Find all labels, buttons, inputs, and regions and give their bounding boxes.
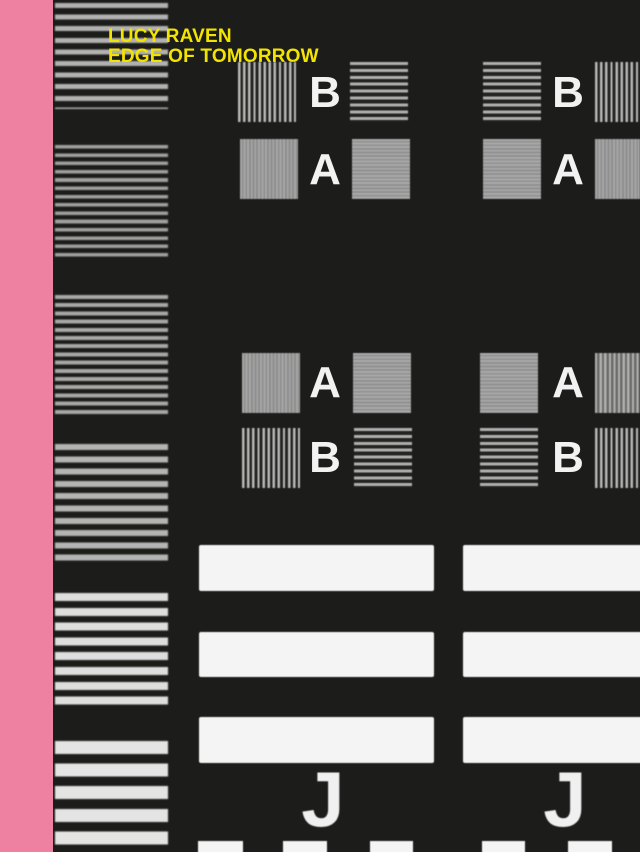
resolution-stripe-band-4 [55, 444, 168, 567]
test-square-vertical-coarse-cropped [595, 62, 640, 122]
test-square-horizontal-coarse [354, 428, 412, 488]
pattern-letter: B [546, 437, 590, 479]
bottom-partial-square [370, 841, 413, 852]
footer-letter-j-left: J [300, 760, 346, 838]
test-square-vertical-medium-cropped [595, 353, 640, 413]
test-square-vertical-coarse [242, 428, 300, 488]
test-square-vertical-fine [240, 139, 298, 199]
test-square-vertical-coarse-cropped [595, 428, 640, 488]
pattern-letter: B [303, 437, 347, 479]
pattern-letter: A [303, 149, 347, 191]
pattern-letter: A [546, 362, 590, 404]
white-bar [199, 545, 434, 591]
white-bar [463, 545, 640, 591]
pattern-letter: B [303, 72, 347, 114]
resolution-stripe-band-5 [55, 593, 168, 708]
test-square-horizontal-fine [483, 139, 541, 199]
test-square-vertical-fine [242, 353, 300, 413]
test-square-horizontal-fine [480, 353, 538, 413]
book-cover: LUCY RAVEN EDGE OF TOMORROW B A B A A B … [0, 0, 640, 852]
pattern-letter: A [546, 149, 590, 191]
pattern-letter: A [303, 362, 347, 404]
footer-letter-j-right: J [542, 760, 588, 838]
cover-title: LUCY RAVEN EDGE OF TOMORROW [108, 27, 319, 67]
title-artist-name: LUCY RAVEN [108, 27, 319, 47]
test-square-horizontal-fine [353, 353, 411, 413]
test-square-horizontal-coarse [483, 62, 541, 122]
bottom-partial-square [482, 841, 525, 852]
resolution-stripe-band-2 [55, 145, 168, 257]
test-square-vertical-fine-cropped [595, 139, 640, 199]
bottom-partial-square [283, 841, 327, 852]
test-square-vertical-coarse [238, 62, 296, 122]
pattern-letter: B [546, 72, 590, 114]
test-square-horizontal-coarse [480, 428, 538, 488]
white-bar [463, 632, 640, 677]
test-square-horizontal-coarse [350, 62, 408, 122]
resolution-stripe-band-3 [55, 295, 168, 414]
test-square-horizontal-fine [352, 139, 410, 199]
white-bar [199, 632, 434, 677]
bottom-partial-square [198, 841, 243, 852]
pink-spine-stripe [0, 0, 53, 852]
bottom-partial-square [568, 841, 612, 852]
resolution-stripe-band-6 [55, 741, 168, 852]
